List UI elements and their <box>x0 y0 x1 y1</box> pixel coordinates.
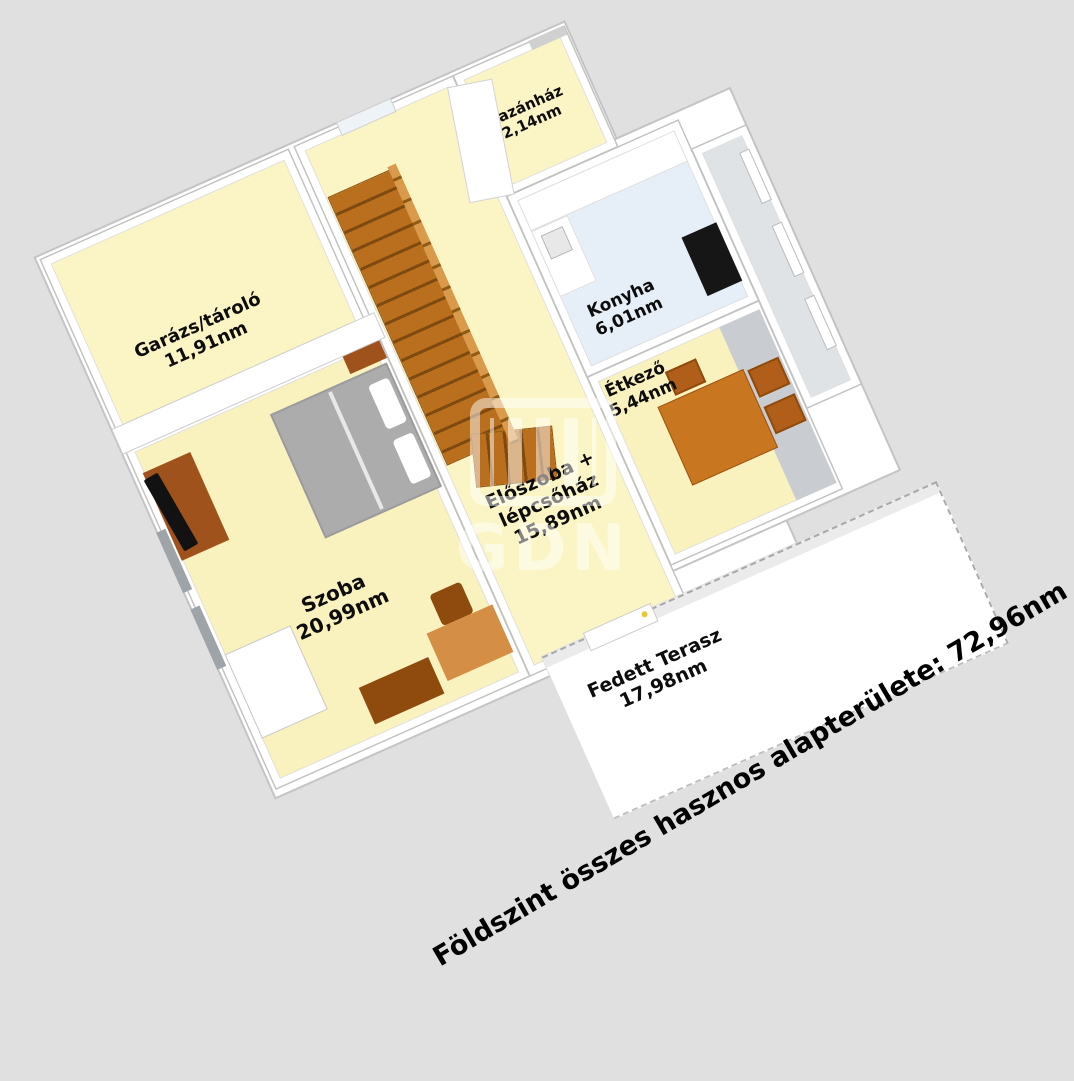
floorplan-3d: Garázs/tároló 11,91nm Szoba 20,99nm Elős… <box>36 0 1074 1080</box>
blanket-edge <box>328 391 384 510</box>
door-handle <box>641 610 649 618</box>
window <box>805 296 835 349</box>
window <box>740 150 770 203</box>
window <box>773 223 803 276</box>
